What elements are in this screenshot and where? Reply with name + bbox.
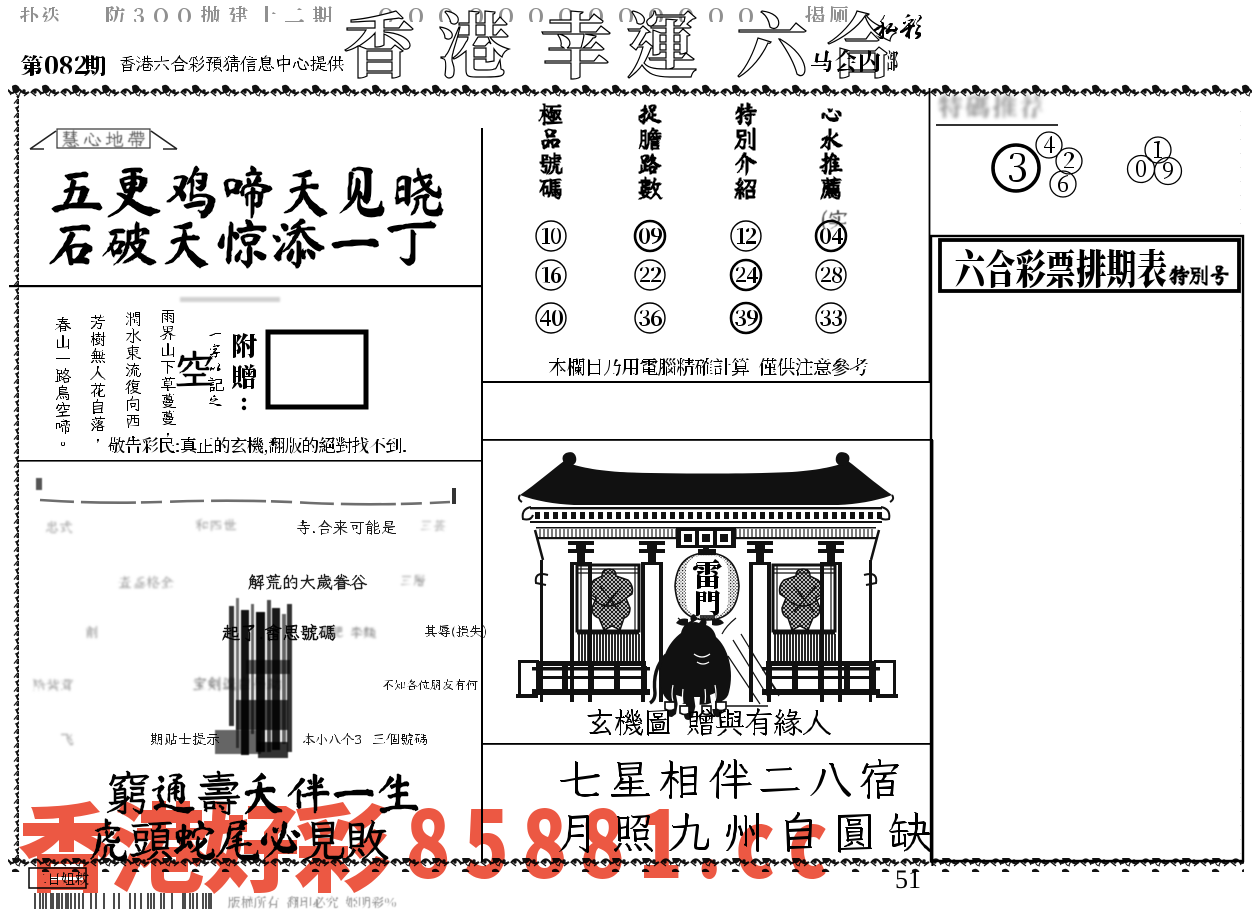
svg-text:51: 51 (895, 865, 921, 894)
